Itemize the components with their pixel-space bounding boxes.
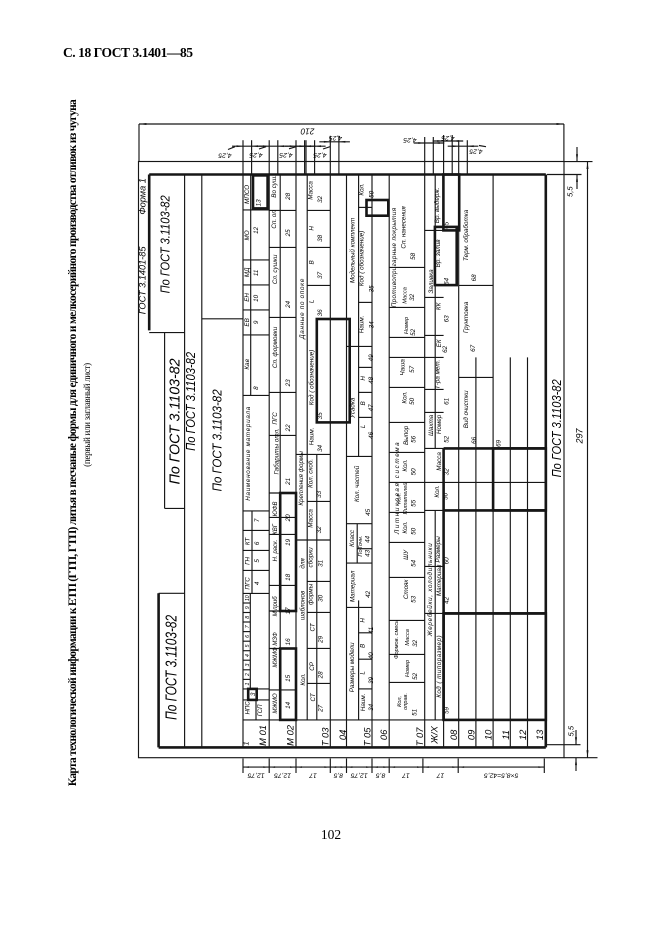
svg-text:МО: МО	[244, 230, 251, 240]
svg-text:СР: СР	[309, 661, 316, 671]
svg-text:Т 03: Т 03	[319, 727, 330, 747]
svg-text:10: 10	[483, 729, 494, 740]
svg-text:19: 19	[285, 538, 292, 546]
svg-text:Кол.: Кол.	[358, 183, 365, 195]
svg-text:Габариты отл.: Габариты отл.	[273, 428, 281, 474]
svg-text:17: 17	[437, 772, 445, 779]
svg-text:Код ( обозначение): Код ( обозначение)	[357, 231, 365, 287]
svg-text:12: 12	[253, 226, 260, 234]
svg-text:24: 24	[285, 300, 292, 309]
svg-text:По ГОСТ 3.1103-82: По ГОСТ 3.1103-82	[549, 379, 564, 478]
svg-text:17: 17	[402, 772, 410, 779]
svg-text:Чаша: Чаша	[400, 359, 407, 376]
svg-text:51: 51	[412, 709, 419, 716]
svg-text:4,25: 4,25	[441, 134, 454, 141]
svg-text:Кол. частей: Кол. частей	[353, 465, 361, 502]
svg-text:13: 13	[534, 729, 545, 740]
svg-text:Терм. обработка: Терм. обработка	[462, 209, 470, 261]
svg-text:(первый или заглавный лист): (первый или заглавный лист)	[82, 363, 92, 467]
svg-text:5×8,5=42,5: 5×8,5=42,5	[484, 772, 519, 779]
svg-text:Сп. оп: Сп. оп	[271, 210, 278, 229]
svg-text:Кав: Кав	[244, 358, 251, 369]
svg-text:СТ: СТ	[310, 692, 317, 701]
svg-text:25: 25	[285, 229, 292, 238]
svg-text:Наим.: Наим.	[308, 428, 315, 446]
svg-text:ГН: ГН	[245, 556, 252, 564]
svg-text:32: 32	[409, 293, 416, 301]
svg-text:43: 43	[365, 549, 372, 557]
svg-text:34: 34	[368, 321, 375, 329]
svg-text:Литниковая система: Литниковая система	[394, 441, 401, 535]
svg-text:Грунтовка: Грунтовка	[463, 301, 470, 333]
svg-text:38: 38	[317, 234, 324, 242]
svg-text:53: 53	[411, 595, 418, 603]
svg-text:09: 09	[465, 729, 476, 740]
svg-text:64: 64	[444, 277, 451, 285]
svg-text:М 02: М 02	[284, 724, 295, 746]
svg-text:55: 55	[411, 499, 418, 507]
svg-text:Формов. смесь: Формов. смесь	[394, 620, 400, 659]
svg-text:Кол.: Кол.	[300, 673, 307, 685]
svg-text:67: 67	[470, 344, 477, 352]
svg-text:Н. раск.: Н. раск.	[273, 539, 279, 561]
svg-text:4,25: 4,25	[249, 151, 262, 158]
svg-text:Т 05: Т 05	[362, 727, 373, 747]
svg-text:Код ( обозначение): Код ( обозначение)	[308, 350, 316, 406]
svg-text:L: L	[360, 424, 367, 428]
svg-text:L: L	[308, 299, 315, 303]
svg-text:34: 34	[317, 444, 324, 452]
svg-text:8,5: 8,5	[333, 772, 343, 779]
svg-text:52: 52	[410, 328, 417, 336]
svg-text:44: 44	[365, 535, 372, 543]
svg-text:297: 297	[575, 428, 585, 445]
svg-text:4,25: 4,25	[403, 136, 416, 143]
svg-text:Материал: Материал	[436, 564, 443, 596]
svg-text:17: 17	[285, 607, 292, 615]
svg-text:По ГОСТ 3.1103-82: По ГОСТ 3.1103-82	[184, 352, 198, 451]
svg-text:34: 34	[368, 703, 375, 711]
svg-text:32: 32	[317, 195, 324, 203]
svg-text:8: 8	[245, 616, 251, 619]
svg-text:По ГОСТ 3.1103-82: По ГОСТ 3.1103-82	[211, 389, 225, 491]
svg-text:По ГОСТ 3.1103-82: По ГОСТ 3.1103-82	[158, 195, 173, 294]
svg-text:3: 3	[245, 663, 251, 666]
svg-text:11: 11	[253, 270, 260, 277]
svg-text:27: 27	[318, 704, 325, 713]
svg-text:Во суш.: Во суш.	[271, 175, 278, 198]
svg-text:Н: Н	[360, 376, 367, 381]
svg-text:08: 08	[448, 729, 459, 740]
svg-text:6: 6	[254, 541, 261, 545]
svg-text:Вр. залив: Вр. залив	[435, 239, 442, 268]
svg-text:10: 10	[245, 595, 251, 601]
svg-text:57: 57	[409, 365, 416, 373]
svg-text:35: 35	[368, 285, 375, 293]
svg-text:10: 10	[253, 294, 260, 302]
svg-text:7: 7	[254, 518, 261, 522]
svg-text:сборки: сборки	[307, 547, 315, 568]
svg-text:5,5: 5,5	[566, 186, 575, 197]
svg-text:Кол.: Кол.	[397, 493, 403, 504]
svg-text:Сп. формовки: Сп. формовки	[272, 326, 279, 368]
svg-text:29: 29	[318, 635, 325, 644]
svg-text:шаблонов: шаблонов	[298, 590, 306, 620]
svg-text:56: 56	[411, 435, 418, 443]
svg-text:21: 21	[285, 478, 292, 486]
svg-text:Наим.: Наим.	[360, 694, 367, 712]
svg-text:Код ( типоразмер): Код ( типоразмер)	[435, 635, 443, 698]
svg-text:40: 40	[368, 652, 375, 660]
svg-text:КТ: КТ	[245, 536, 252, 545]
svg-text:4,25: 4,25	[313, 151, 326, 158]
svg-text:4: 4	[245, 654, 251, 657]
svg-text:14: 14	[285, 701, 292, 709]
svg-text:39: 39	[368, 676, 375, 684]
svg-text:КК: КК	[436, 302, 443, 310]
svg-text:5: 5	[245, 644, 251, 647]
svg-text:31: 31	[318, 560, 325, 567]
svg-text:04: 04	[337, 730, 348, 740]
svg-text:ЮФВ: ЮФВ	[273, 501, 279, 516]
svg-text:23: 23	[285, 379, 292, 388]
svg-text:9: 9	[253, 320, 260, 324]
svg-text:ШУ: ШУ	[403, 549, 410, 560]
svg-text:41: 41	[368, 627, 375, 634]
svg-text:15: 15	[285, 674, 292, 682]
svg-text:1: 1	[242, 741, 251, 745]
svg-text:Масса: Масса	[403, 287, 409, 304]
svg-text:4: 4	[254, 581, 261, 585]
svg-text:52: 52	[412, 672, 419, 680]
svg-text:Вид очистки: Вид очистки	[462, 390, 470, 428]
svg-text:12,75: 12,75	[350, 772, 367, 779]
svg-text:Кол.: Кол.	[402, 521, 409, 533]
svg-text:Н: Н	[308, 226, 315, 231]
svg-text:2: 2	[245, 673, 251, 677]
svg-text:Данные по опоке: Данные по опоке	[299, 278, 306, 340]
svg-text:49: 49	[368, 354, 375, 362]
svg-text:Наим.: Наим.	[358, 316, 365, 334]
svg-text:В: В	[359, 644, 366, 648]
svg-text:Вр. выдерж.: Вр. выдерж.	[433, 188, 441, 224]
svg-text:54: 54	[411, 559, 418, 567]
svg-text:Точн.: Точн.	[358, 536, 364, 550]
svg-text:ГОСТ 3.1401-85: ГОСТ 3.1401-85	[138, 246, 148, 315]
svg-text:Номер: Номер	[405, 660, 411, 677]
svg-text:22: 22	[285, 424, 292, 433]
svg-text:68: 68	[471, 274, 478, 282]
svg-text:Масса: Масса	[307, 181, 314, 200]
svg-text:Кол. скоб.: Кол. скоб.	[307, 459, 315, 488]
svg-text:30: 30	[318, 594, 325, 602]
svg-text:9: 9	[245, 606, 251, 609]
svg-text:В: В	[360, 401, 367, 405]
svg-text:11: 11	[500, 730, 511, 740]
svg-text:Размеры модели: Размеры модели	[348, 642, 356, 692]
svg-text:102: 102	[321, 827, 341, 842]
svg-text:Шахта: Шахта	[428, 414, 435, 436]
svg-text:для: для	[298, 558, 306, 569]
svg-text:ЕВ: ЕВ	[244, 318, 251, 326]
svg-text:МД: МД	[244, 267, 251, 277]
svg-text:12: 12	[517, 729, 528, 740]
svg-text:33: 33	[316, 490, 323, 498]
svg-text:М приб: М приб	[273, 596, 279, 617]
svg-text:Форма 1: Форма 1	[138, 178, 148, 215]
svg-text:48: 48	[368, 376, 375, 384]
svg-text:Материал: Материал	[350, 570, 357, 602]
svg-text:М 01: М 01	[257, 725, 268, 746]
svg-text:06: 06	[378, 729, 389, 740]
svg-text:Кол.: Кол.	[402, 459, 409, 471]
svg-text:СТ: СТ	[309, 622, 316, 631]
svg-text:28: 28	[285, 192, 292, 201]
svg-text:210: 210	[300, 127, 315, 136]
svg-text:ПГС: ПГС	[272, 412, 279, 425]
svg-text:МПСО: МПСО	[244, 185, 251, 204]
svg-text:Питателей: Питателей	[402, 482, 409, 514]
svg-text:4,25: 4,25	[469, 148, 482, 155]
svg-text:50: 50	[368, 190, 375, 198]
svg-text:Масса: Масса	[405, 629, 411, 646]
svg-text:4,25: 4,25	[218, 152, 231, 159]
svg-text:6: 6	[245, 635, 251, 638]
svg-text:Стояк: Стояк	[403, 579, 410, 599]
svg-text:Н: Н	[359, 618, 366, 623]
svg-text:Класс: Класс	[349, 529, 356, 547]
svg-text:Номер: Номер	[436, 414, 443, 434]
svg-text:формы: формы	[308, 583, 315, 605]
svg-text:28: 28	[318, 671, 325, 680]
svg-text:По: По	[358, 549, 364, 556]
svg-text:Ж/Х: Ж/Х	[429, 725, 440, 744]
svg-text:5,5: 5,5	[567, 725, 576, 736]
svg-text:Т 07: Т 07	[414, 727, 425, 747]
svg-text:16: 16	[285, 638, 292, 646]
svg-text:Кол.: Кол.	[402, 391, 409, 403]
svg-text:5: 5	[254, 559, 261, 563]
svg-text:L: L	[359, 671, 366, 675]
svg-text:Сп. нанесения: Сп. нанесения	[401, 206, 408, 249]
svg-text:Сл. сушки: Сл. сушки	[272, 254, 279, 284]
svg-text:Масса: Масса	[436, 452, 443, 471]
svg-text:НПС: НПС	[246, 701, 252, 715]
svg-text:62: 62	[442, 345, 449, 353]
svg-text:18: 18	[285, 573, 292, 581]
svg-text:оправ.: оправ.	[403, 693, 409, 710]
svg-text:Карта технологической информац: Карта технологической информации к ЕТП (…	[67, 99, 79, 786]
svg-text:37: 37	[317, 271, 324, 279]
svg-text:50: 50	[409, 397, 416, 405]
svg-text:61: 61	[444, 398, 451, 405]
svg-text:Выпор: Выпор	[403, 425, 410, 445]
svg-text:42: 42	[365, 590, 372, 598]
svg-text:Жеребейки, холодильники: Жеребейки, холодильники	[426, 543, 434, 638]
svg-text:13: 13	[256, 199, 263, 207]
svg-text:КВГ: КВГ	[273, 523, 279, 535]
svg-text:Масса: Масса	[308, 509, 315, 528]
svg-text:50: 50	[411, 468, 418, 476]
svg-text:45: 45	[365, 508, 372, 516]
svg-text:47: 47	[368, 404, 375, 412]
svg-text:69: 69	[496, 439, 503, 447]
svg-text:МЗФ: МЗФ	[273, 632, 279, 646]
svg-text:1: 1	[245, 683, 251, 686]
svg-text:Противопригарные покрытия: Противопригарные покрытия	[391, 207, 398, 307]
svg-text:20: 20	[285, 514, 292, 523]
svg-text:32: 32	[316, 526, 323, 534]
svg-text:46: 46	[368, 431, 375, 439]
svg-text:4,25: 4,25	[329, 134, 342, 141]
svg-text:66: 66	[471, 436, 478, 444]
svg-text:Т-ра мет.: Т-ра мет.	[435, 360, 442, 389]
svg-text:Крепления формы: Крепления формы	[298, 451, 305, 506]
svg-text:8: 8	[253, 386, 260, 390]
svg-text:Наименование материала: Наименование материала	[245, 406, 252, 501]
svg-text:Размеры: Размеры	[435, 536, 442, 563]
svg-text:8,5: 8,5	[376, 772, 386, 779]
svg-text:35: 35	[317, 412, 324, 420]
svg-text:52: 52	[444, 435, 451, 443]
svg-text:В: В	[308, 260, 315, 264]
svg-text:Усадка: Усадка	[349, 397, 357, 419]
svg-text:58: 58	[410, 252, 417, 260]
svg-text:По ГОСТ 3.1103-82: По ГОСТ 3.1103-82	[167, 358, 184, 485]
svg-text:3: 3	[250, 692, 257, 696]
svg-text:По ГОСТ 3.1103-82: По ГОСТ 3.1103-82	[164, 615, 181, 720]
svg-text:ЕН: ЕН	[244, 293, 251, 302]
svg-text:Модельный комплект: Модельный комплект	[349, 218, 357, 283]
svg-text:50: 50	[411, 527, 418, 535]
svg-text:12,75: 12,75	[247, 772, 264, 779]
svg-text:63: 63	[444, 315, 451, 323]
svg-text:ПГС: ПГС	[245, 577, 252, 590]
svg-text:32: 32	[412, 639, 419, 647]
svg-text:ГСП: ГСП	[258, 704, 264, 716]
svg-text:36: 36	[317, 309, 324, 317]
svg-text:С. 18 ГОСТ 3.1401—85: С. 18 ГОСТ 3.1401—85	[63, 45, 193, 60]
svg-text:17: 17	[309, 772, 317, 779]
svg-text:МЖМО: МЖМО	[273, 693, 279, 713]
svg-text:Кол.: Кол.	[434, 485, 441, 497]
svg-text:12,75: 12,75	[274, 772, 291, 779]
svg-text:МЖМФ: МЖМФ	[273, 647, 279, 667]
svg-text:4,25: 4,25	[279, 151, 292, 158]
